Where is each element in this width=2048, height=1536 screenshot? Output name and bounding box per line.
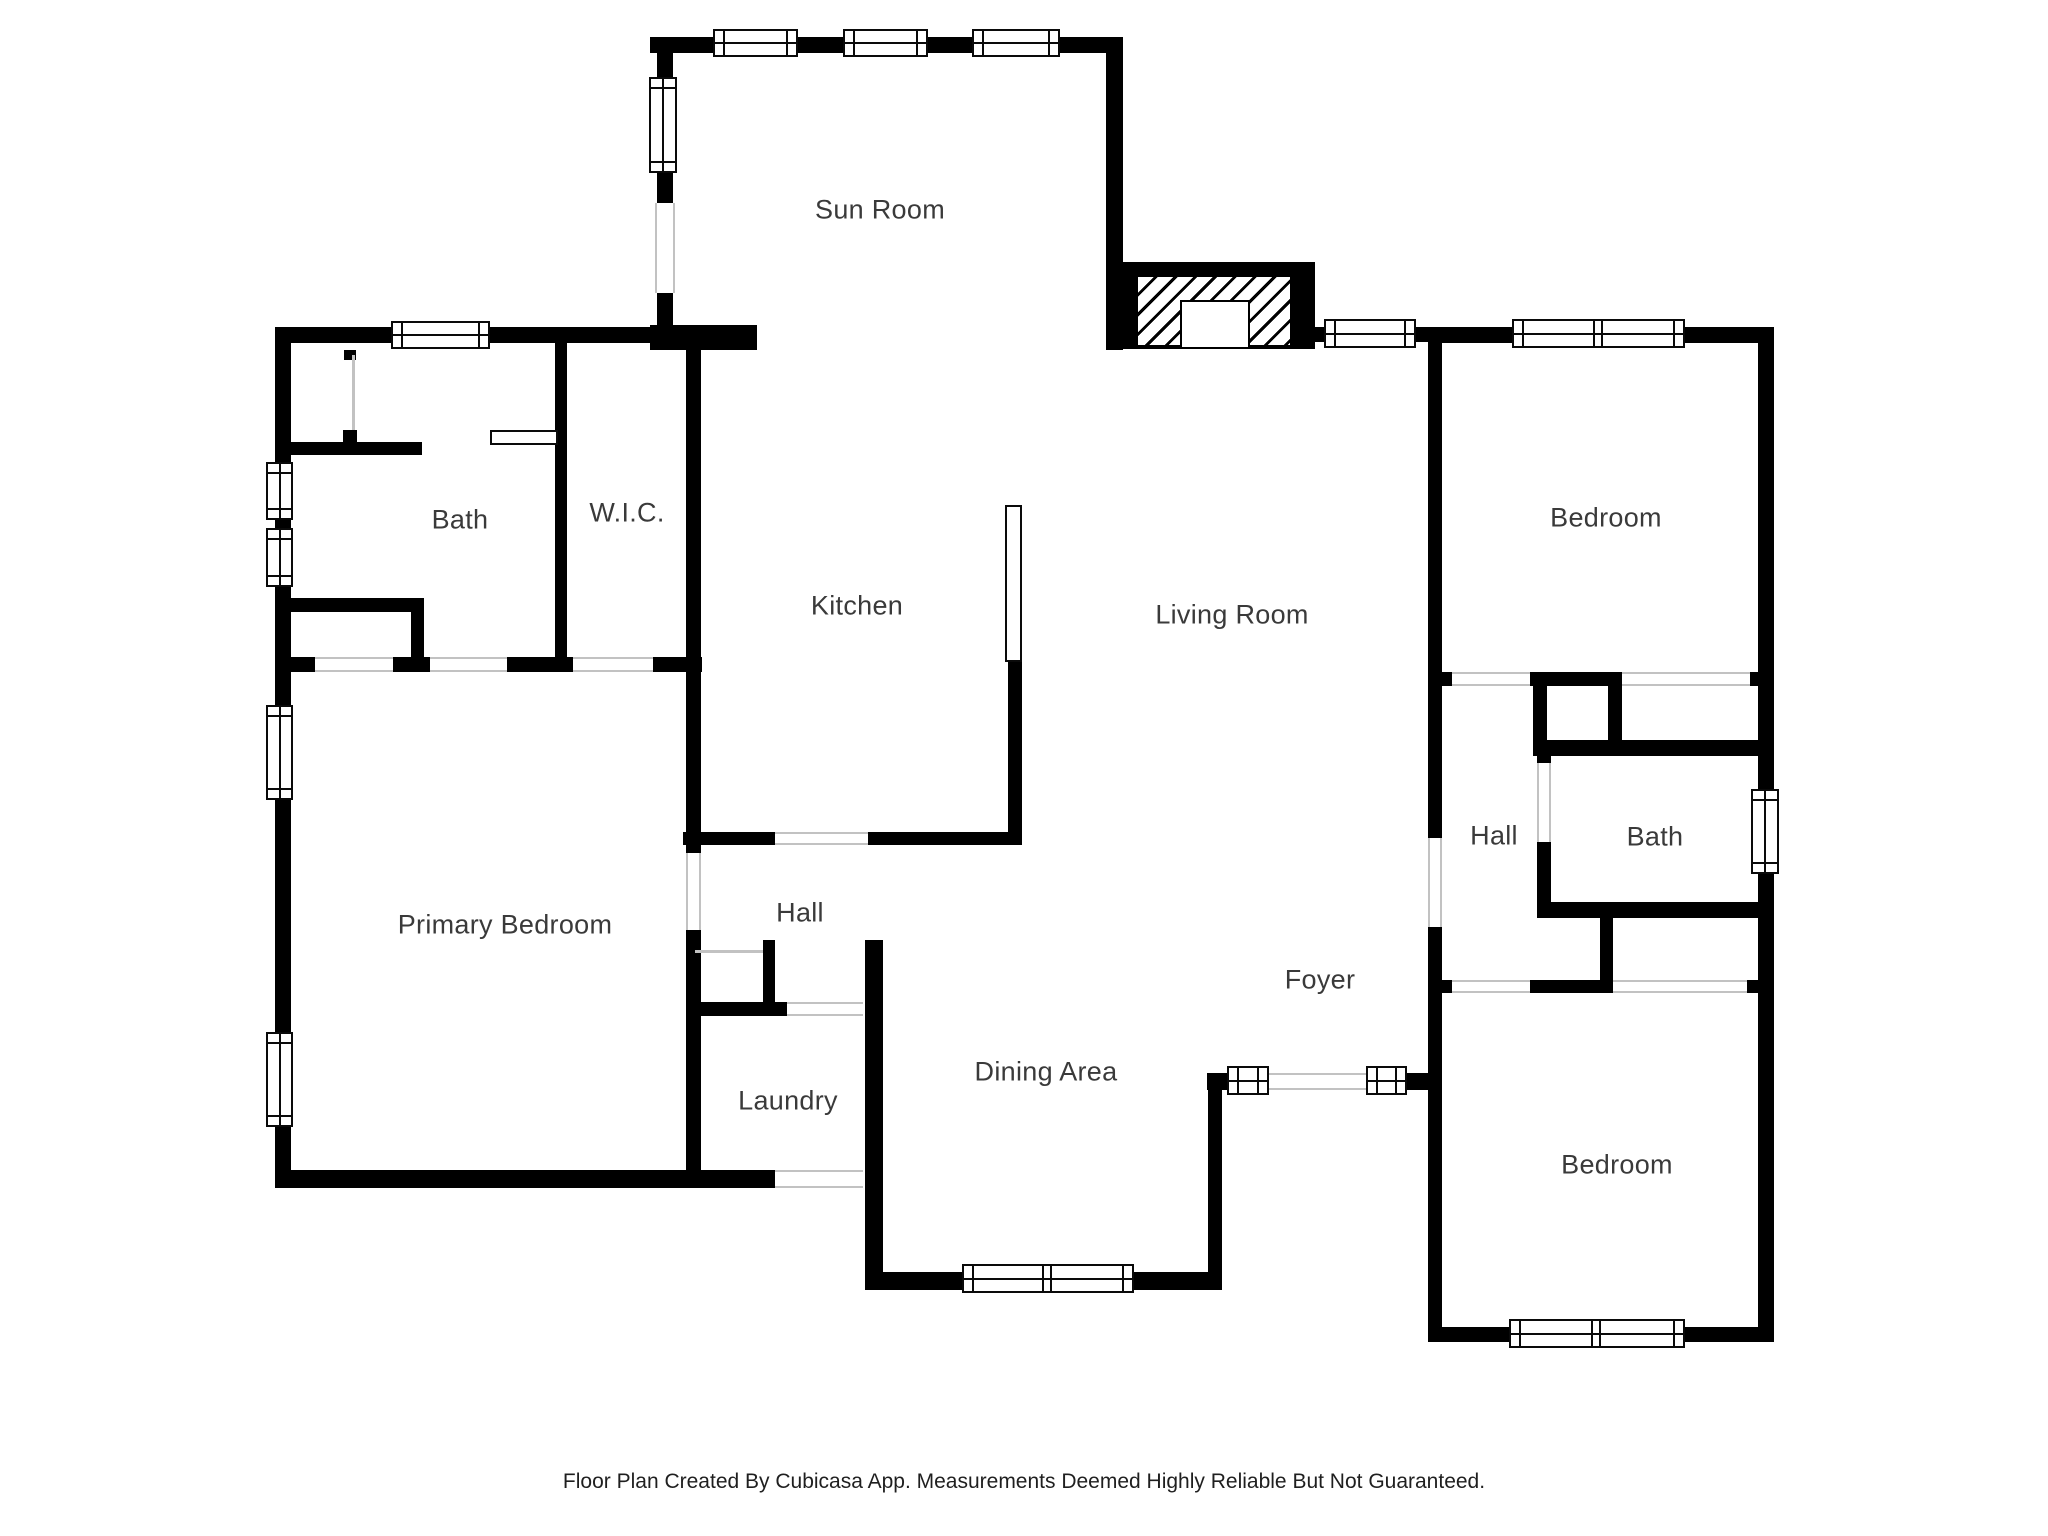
window bbox=[713, 29, 798, 57]
window-mullion bbox=[972, 1266, 974, 1291]
window-mullion bbox=[786, 31, 788, 55]
fireplace-firebox bbox=[1180, 300, 1250, 349]
window bbox=[1324, 319, 1416, 348]
window-mullion bbox=[1237, 1068, 1239, 1093]
door-opening bbox=[655, 203, 675, 293]
window bbox=[266, 528, 293, 587]
wall bbox=[1537, 902, 1774, 918]
window-pane-line bbox=[1764, 791, 1766, 872]
window-pane-line bbox=[845, 42, 926, 44]
door-opening bbox=[315, 657, 393, 672]
window-mullion bbox=[1753, 799, 1777, 801]
window-mullion bbox=[1257, 1068, 1259, 1093]
window-pane-line bbox=[1368, 1080, 1405, 1082]
window-mullion bbox=[1522, 321, 1524, 346]
window-mullion bbox=[1048, 31, 1050, 55]
window-pane-line bbox=[1511, 1333, 1683, 1335]
window bbox=[391, 321, 490, 349]
door-opening-line bbox=[695, 950, 763, 953]
window bbox=[1227, 1066, 1269, 1095]
window-mullion bbox=[651, 161, 675, 163]
room-label-kitchen: Kitchen bbox=[811, 593, 903, 620]
window-mullion bbox=[1334, 321, 1336, 346]
window-mullion bbox=[651, 87, 675, 89]
room-label-bath-right: Bath bbox=[1627, 824, 1684, 851]
window-pane-line bbox=[1514, 333, 1683, 335]
wall bbox=[1208, 1073, 1222, 1290]
door-opening bbox=[775, 832, 868, 845]
window-mullion bbox=[1042, 1266, 1044, 1291]
wall bbox=[1106, 37, 1123, 350]
window-mullion bbox=[1591, 1321, 1593, 1346]
room-label-hall-right: Hall bbox=[1470, 823, 1518, 850]
window bbox=[266, 705, 293, 800]
wall bbox=[763, 940, 775, 1003]
window-mullion bbox=[1601, 321, 1603, 346]
door-opening bbox=[686, 853, 701, 930]
window-mullion bbox=[268, 538, 291, 540]
room-label-bedroom-top: Bedroom bbox=[1550, 505, 1662, 532]
window bbox=[962, 1264, 1134, 1293]
door-opening bbox=[1613, 980, 1747, 993]
window-pane-line bbox=[715, 42, 796, 44]
wall bbox=[555, 343, 567, 657]
window-mullion bbox=[916, 31, 918, 55]
window-pane-line bbox=[279, 1034, 281, 1125]
window-mullion bbox=[268, 1042, 291, 1044]
window-mullion bbox=[1599, 1321, 1601, 1346]
room-label-hall-center: Hall bbox=[776, 900, 824, 927]
window bbox=[1751, 789, 1779, 874]
window bbox=[972, 29, 1060, 57]
door-opening bbox=[1452, 980, 1530, 993]
window bbox=[649, 77, 677, 173]
door-opening bbox=[1537, 763, 1551, 842]
wall bbox=[686, 343, 701, 1188]
door-opening bbox=[787, 1002, 863, 1016]
window-mullion bbox=[1376, 1068, 1378, 1093]
window-mullion bbox=[401, 323, 403, 347]
room-label-laundry: Laundry bbox=[738, 1088, 838, 1115]
window-mullion bbox=[268, 472, 291, 474]
window bbox=[843, 29, 928, 57]
window-mullion bbox=[982, 31, 984, 55]
wall bbox=[865, 940, 883, 1290]
window-mullion bbox=[1753, 862, 1777, 864]
fireplace bbox=[1123, 262, 1315, 349]
window-mullion bbox=[1395, 1068, 1397, 1093]
window-mullion bbox=[1673, 321, 1675, 346]
room-label-wic: W.I.C. bbox=[589, 500, 664, 527]
window-mullion bbox=[1050, 1266, 1052, 1291]
window-pane-line bbox=[1229, 1080, 1267, 1082]
window-pane-line bbox=[964, 1278, 1132, 1280]
footer-disclaimer: Floor Plan Created By Cubicasa App. Meas… bbox=[0, 1470, 2048, 1494]
window-pane-line bbox=[1326, 333, 1414, 335]
window-mullion bbox=[853, 31, 855, 55]
window-mullion bbox=[268, 715, 291, 717]
window-mullion bbox=[1673, 1321, 1675, 1346]
window-mullion bbox=[723, 31, 725, 55]
wall bbox=[1008, 660, 1022, 845]
window bbox=[1512, 319, 1685, 348]
room-label-foyer: Foyer bbox=[1285, 967, 1356, 994]
window-pane-line bbox=[393, 334, 488, 336]
room-label-bath-left: Bath bbox=[432, 507, 489, 534]
window-mullion bbox=[1519, 1321, 1521, 1346]
room-label-primary-bedroom: Primary Bedroom bbox=[398, 912, 613, 939]
window bbox=[266, 1032, 293, 1127]
room-label-bedroom-bottom: Bedroom bbox=[1561, 1152, 1673, 1179]
window bbox=[266, 462, 293, 520]
kitchen-counter bbox=[1005, 505, 1022, 662]
room-label-dining-area: Dining Area bbox=[975, 1059, 1118, 1086]
wall bbox=[411, 598, 424, 657]
door-opening-line bbox=[352, 355, 355, 430]
wall bbox=[1533, 672, 1547, 740]
door-opening bbox=[1268, 1073, 1367, 1090]
door-opening bbox=[1452, 672, 1530, 686]
room-label-sun-room: Sun Room bbox=[815, 197, 945, 224]
door-opening bbox=[430, 657, 507, 672]
window bbox=[1509, 1319, 1685, 1348]
window bbox=[1366, 1066, 1407, 1095]
room-label-living-room: Living Room bbox=[1155, 602, 1308, 629]
door-opening bbox=[1622, 672, 1750, 686]
wall bbox=[1533, 740, 1774, 756]
window-mullion bbox=[478, 323, 480, 347]
wall bbox=[291, 442, 422, 455]
door-opening bbox=[775, 1170, 863, 1188]
bathroom-vanity bbox=[490, 430, 558, 445]
wall bbox=[291, 598, 413, 612]
window-mullion bbox=[1404, 321, 1406, 346]
window-mullion bbox=[268, 575, 291, 577]
door-opening bbox=[1428, 838, 1442, 927]
window-mullion bbox=[1122, 1266, 1124, 1291]
window-mullion bbox=[268, 508, 291, 510]
door-opening bbox=[573, 657, 653, 672]
window-mullion bbox=[268, 1115, 291, 1117]
floor-plan: Floor Plan Created By Cubicasa App. Meas… bbox=[0, 0, 2048, 1536]
window-pane-line bbox=[279, 707, 281, 798]
window-pane-line bbox=[974, 42, 1058, 44]
window-mullion bbox=[1593, 321, 1595, 346]
window-pane-line bbox=[662, 79, 664, 171]
window-mullion bbox=[268, 788, 291, 790]
